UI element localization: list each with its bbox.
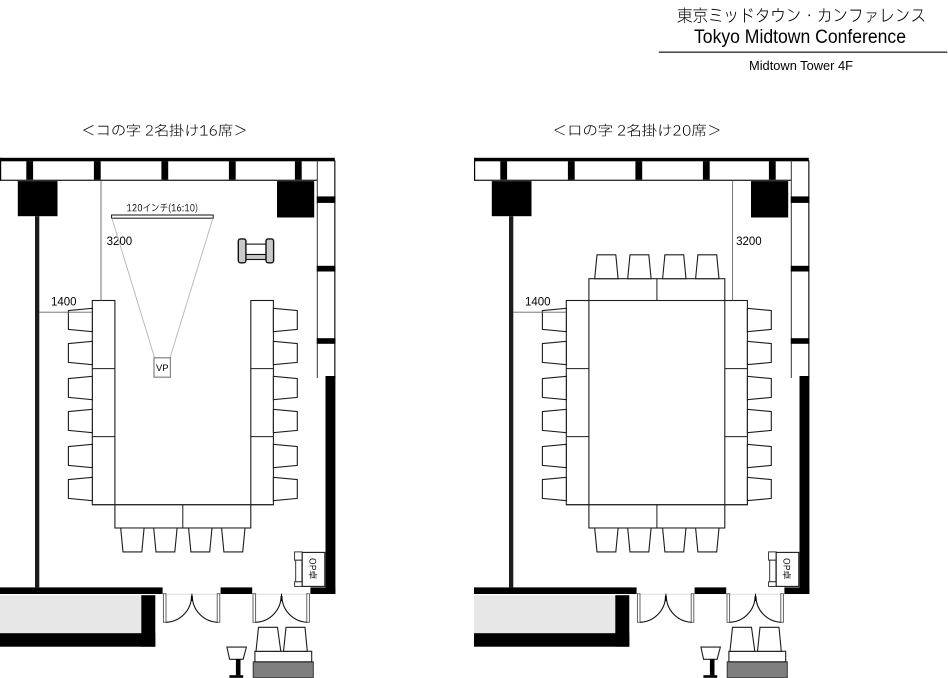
svg-text:Midtown Tower 4F: Midtown Tower 4F	[749, 58, 853, 73]
svg-text:1400: 1400	[51, 296, 77, 308]
svg-text:3200: 3200	[736, 236, 762, 248]
svg-text:VP: VP	[156, 362, 169, 373]
svg-text:1400: 1400	[525, 296, 551, 308]
svg-text:Tokyo Midtown Conference: Tokyo Midtown Conference	[694, 27, 906, 48]
